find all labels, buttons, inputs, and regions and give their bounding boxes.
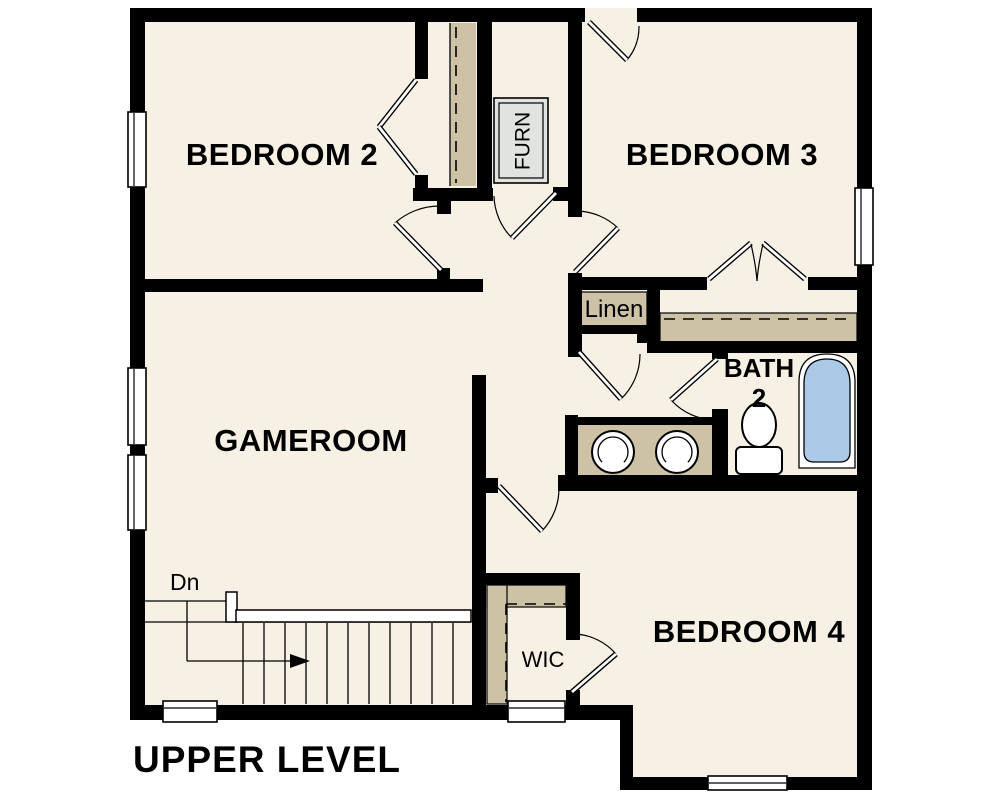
wall-exterior-right <box>857 8 872 790</box>
bath2-label-line2: 2 <box>752 383 766 413</box>
floor-plan-page: FURN <box>0 0 1000 800</box>
wall-br4-door-stub <box>480 478 498 493</box>
bedroom2-closet-shelf <box>450 23 476 186</box>
wall-hall-stub-upper <box>437 188 451 214</box>
floor-plan-drawing: FURN <box>0 0 1000 800</box>
page-title: UPPER LEVEL <box>133 739 401 780</box>
bedroom4-label: BEDROOM 4 <box>653 614 846 649</box>
window-gameroom-lower <box>128 455 146 530</box>
wall-wic-top <box>480 573 580 585</box>
window-bedroom4 <box>708 776 787 790</box>
furnace-label: FURN <box>512 112 535 170</box>
window-bedroom2 <box>128 112 146 187</box>
stair-railing <box>236 610 471 622</box>
gameroom-label: GAMEROOM <box>214 423 407 458</box>
wall-wic-east-upper <box>566 573 580 640</box>
wall-bedroom3-bottom-west <box>568 277 707 290</box>
bath2-label-line1: BATH <box>724 353 794 383</box>
wall-bedroom2-gameroom <box>130 279 483 292</box>
wall-gameroom-east <box>472 375 486 705</box>
wall-hall-bedroom3-upper <box>568 22 582 217</box>
window-bedroom3 <box>855 188 873 265</box>
sink-right <box>656 431 698 473</box>
bathtub <box>799 354 855 468</box>
sink-left <box>592 431 634 473</box>
linen-label: Linen <box>585 296 644 323</box>
window-gameroom-upper <box>128 368 146 445</box>
wall-br3-closet-bottom <box>647 341 872 353</box>
wall-bedroom3-bottom-east <box>808 277 872 290</box>
bedroom3-label: BEDROOM 3 <box>626 137 818 172</box>
wall-vanity-west <box>565 415 578 475</box>
wic-shelf-left <box>487 585 507 704</box>
wall-br2-closet-left-upper <box>415 22 428 79</box>
wall-bath-bedroom4 <box>558 475 872 491</box>
wall-bath-entry-stub <box>637 325 660 343</box>
wall-exterior-top <box>130 8 872 22</box>
stairs-down-label: Dn <box>170 569 199 595</box>
wic-label: WIC <box>522 647 565 672</box>
furnace-unit: FURN <box>494 98 548 183</box>
bedroom3-closet-shelf <box>660 313 857 342</box>
bedroom4-floor-extension <box>626 705 865 781</box>
bedroom2-label: BEDROOM 2 <box>186 137 378 172</box>
wall-bath-west-lower <box>712 409 728 478</box>
wall-closet-furnace-divider <box>477 22 492 201</box>
window-wic <box>508 701 565 722</box>
vanity-counter-edge <box>578 417 712 425</box>
window-stairs <box>163 701 217 722</box>
